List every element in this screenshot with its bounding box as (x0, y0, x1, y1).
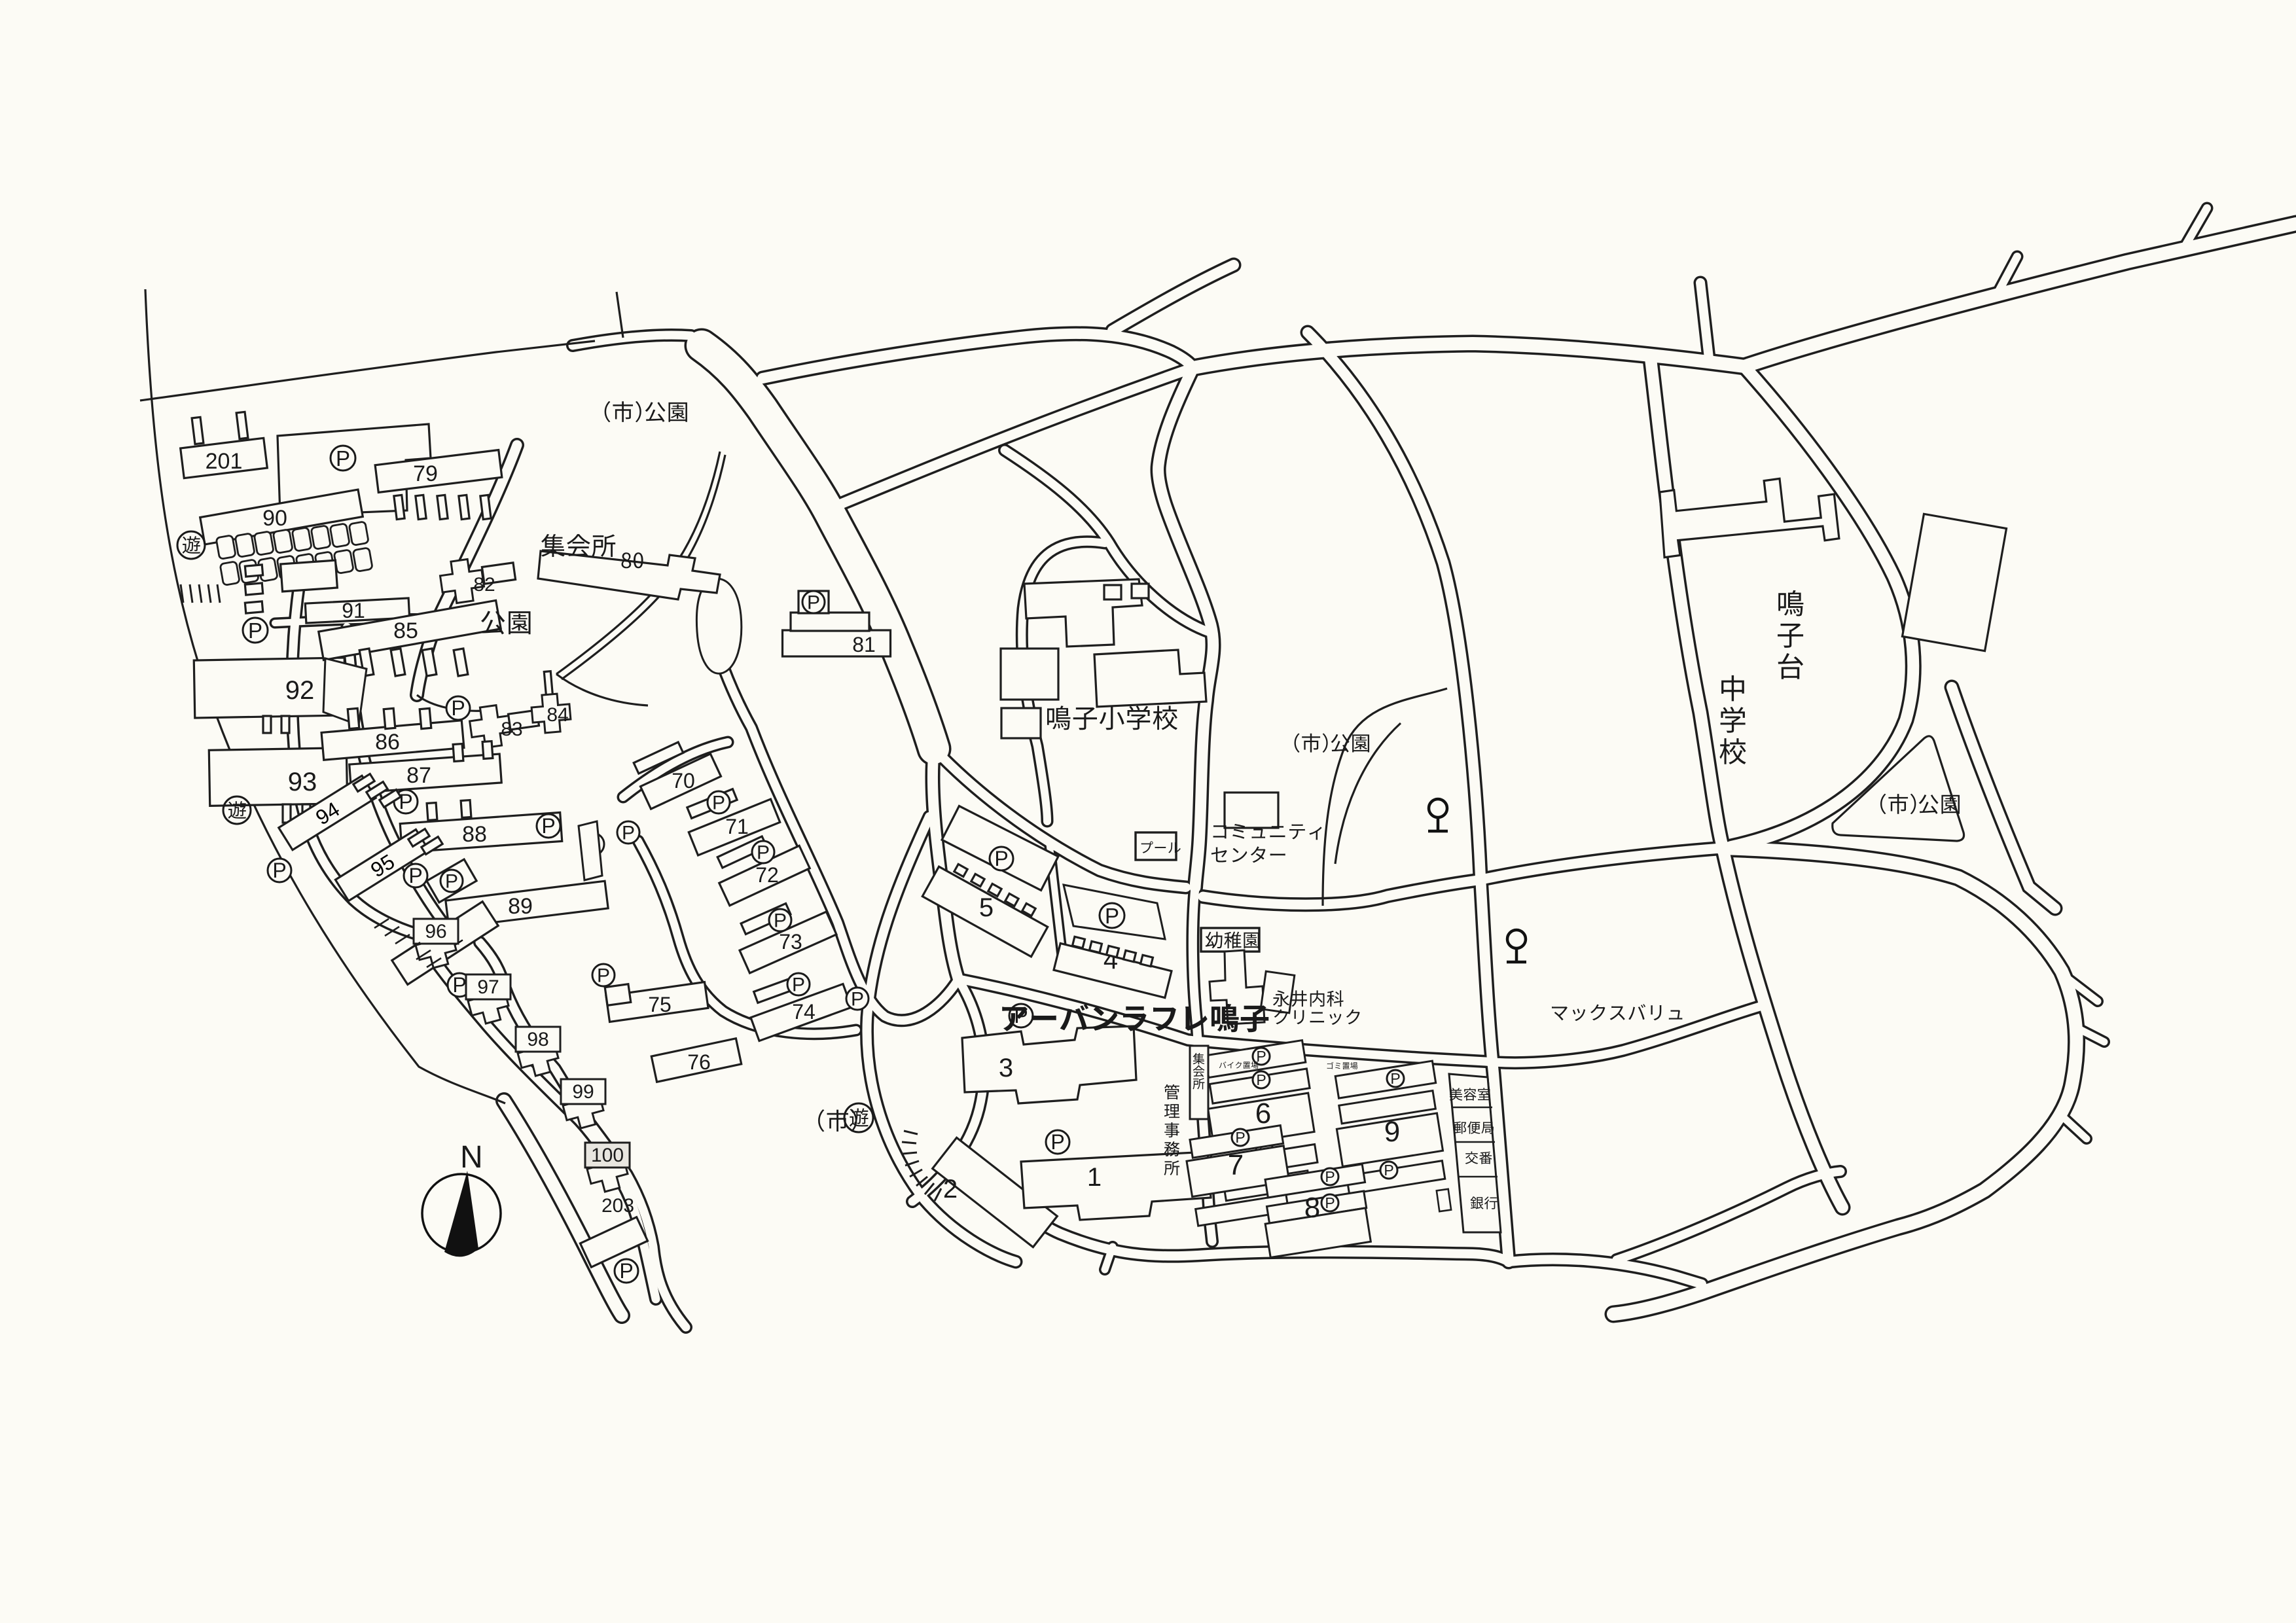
svg-text:73: 73 (779, 930, 802, 954)
svg-text:7: 7 (1228, 1149, 1244, 1181)
svg-text:P: P (1325, 1168, 1335, 1185)
svg-text:86: 86 (375, 730, 400, 755)
svg-text:88: 88 (462, 822, 487, 847)
svg-text:92: 92 (285, 676, 315, 705)
svg-text:75: 75 (648, 993, 672, 1016)
svg-text:N: N (460, 1140, 483, 1175)
svg-text:P: P (408, 864, 422, 887)
svg-text:100: 100 (591, 1145, 624, 1166)
svg-text:71: 71 (725, 815, 749, 838)
svg-text:93: 93 (288, 768, 317, 796)
svg-text:85: 85 (393, 618, 418, 643)
svg-text:P: P (1256, 1071, 1266, 1088)
svg-text:P: P (622, 823, 635, 844)
svg-text:8: 8 (1304, 1192, 1320, 1224)
svg-text:2: 2 (943, 1175, 958, 1204)
svg-text:P: P (272, 859, 286, 882)
svg-text:P: P (619, 1259, 633, 1283)
svg-text:P: P (336, 446, 350, 471)
svg-text:P: P (597, 965, 610, 987)
svg-text:90: 90 (262, 506, 287, 531)
svg-text:87: 87 (406, 763, 431, 788)
svg-text:P: P (851, 989, 864, 1010)
svg-text:P: P (445, 871, 458, 893)
svg-text:3: 3 (999, 1054, 1013, 1082)
svg-text:P: P (792, 974, 805, 996)
svg-text:P: P (807, 592, 820, 614)
svg-text:97: 97 (477, 976, 499, 998)
svg-text:82: 82 (473, 574, 495, 596)
svg-text:9: 9 (1384, 1116, 1400, 1148)
svg-text:96: 96 (425, 921, 446, 942)
svg-text:P: P (248, 618, 262, 643)
svg-text:P: P (399, 790, 412, 813)
svg-text:201: 201 (206, 449, 243, 474)
svg-text:P: P (1105, 904, 1119, 928)
svg-text:99: 99 (572, 1081, 594, 1103)
svg-text:81: 81 (852, 633, 876, 656)
svg-text:84: 84 (547, 704, 568, 726)
svg-text:P: P (1384, 1162, 1393, 1179)
svg-text:P: P (1325, 1194, 1335, 1211)
svg-text:98: 98 (527, 1029, 548, 1050)
svg-text:72: 72 (755, 863, 779, 887)
svg-text:5: 5 (979, 893, 994, 922)
svg-text:79: 79 (413, 461, 438, 486)
svg-text:91: 91 (342, 599, 365, 622)
svg-text:76: 76 (687, 1050, 711, 1074)
svg-text:P: P (541, 814, 555, 838)
svg-text:P: P (1235, 1129, 1245, 1146)
svg-text:203: 203 (601, 1195, 634, 1217)
svg-text:P: P (451, 696, 465, 720)
svg-text:P: P (757, 842, 770, 864)
svg-text:74: 74 (792, 1000, 816, 1024)
svg-text:P: P (452, 973, 466, 997)
svg-text:P: P (994, 847, 1008, 870)
svg-text:P: P (1050, 1130, 1064, 1154)
svg-text:6: 6 (1255, 1097, 1271, 1130)
svg-text:P: P (1390, 1070, 1400, 1087)
svg-text:83: 83 (501, 719, 522, 740)
svg-text:P: P (774, 910, 787, 932)
svg-text:89: 89 (508, 894, 533, 919)
svg-text:70: 70 (672, 769, 695, 793)
svg-text:1: 1 (1087, 1163, 1102, 1192)
svg-text:P: P (712, 793, 725, 814)
